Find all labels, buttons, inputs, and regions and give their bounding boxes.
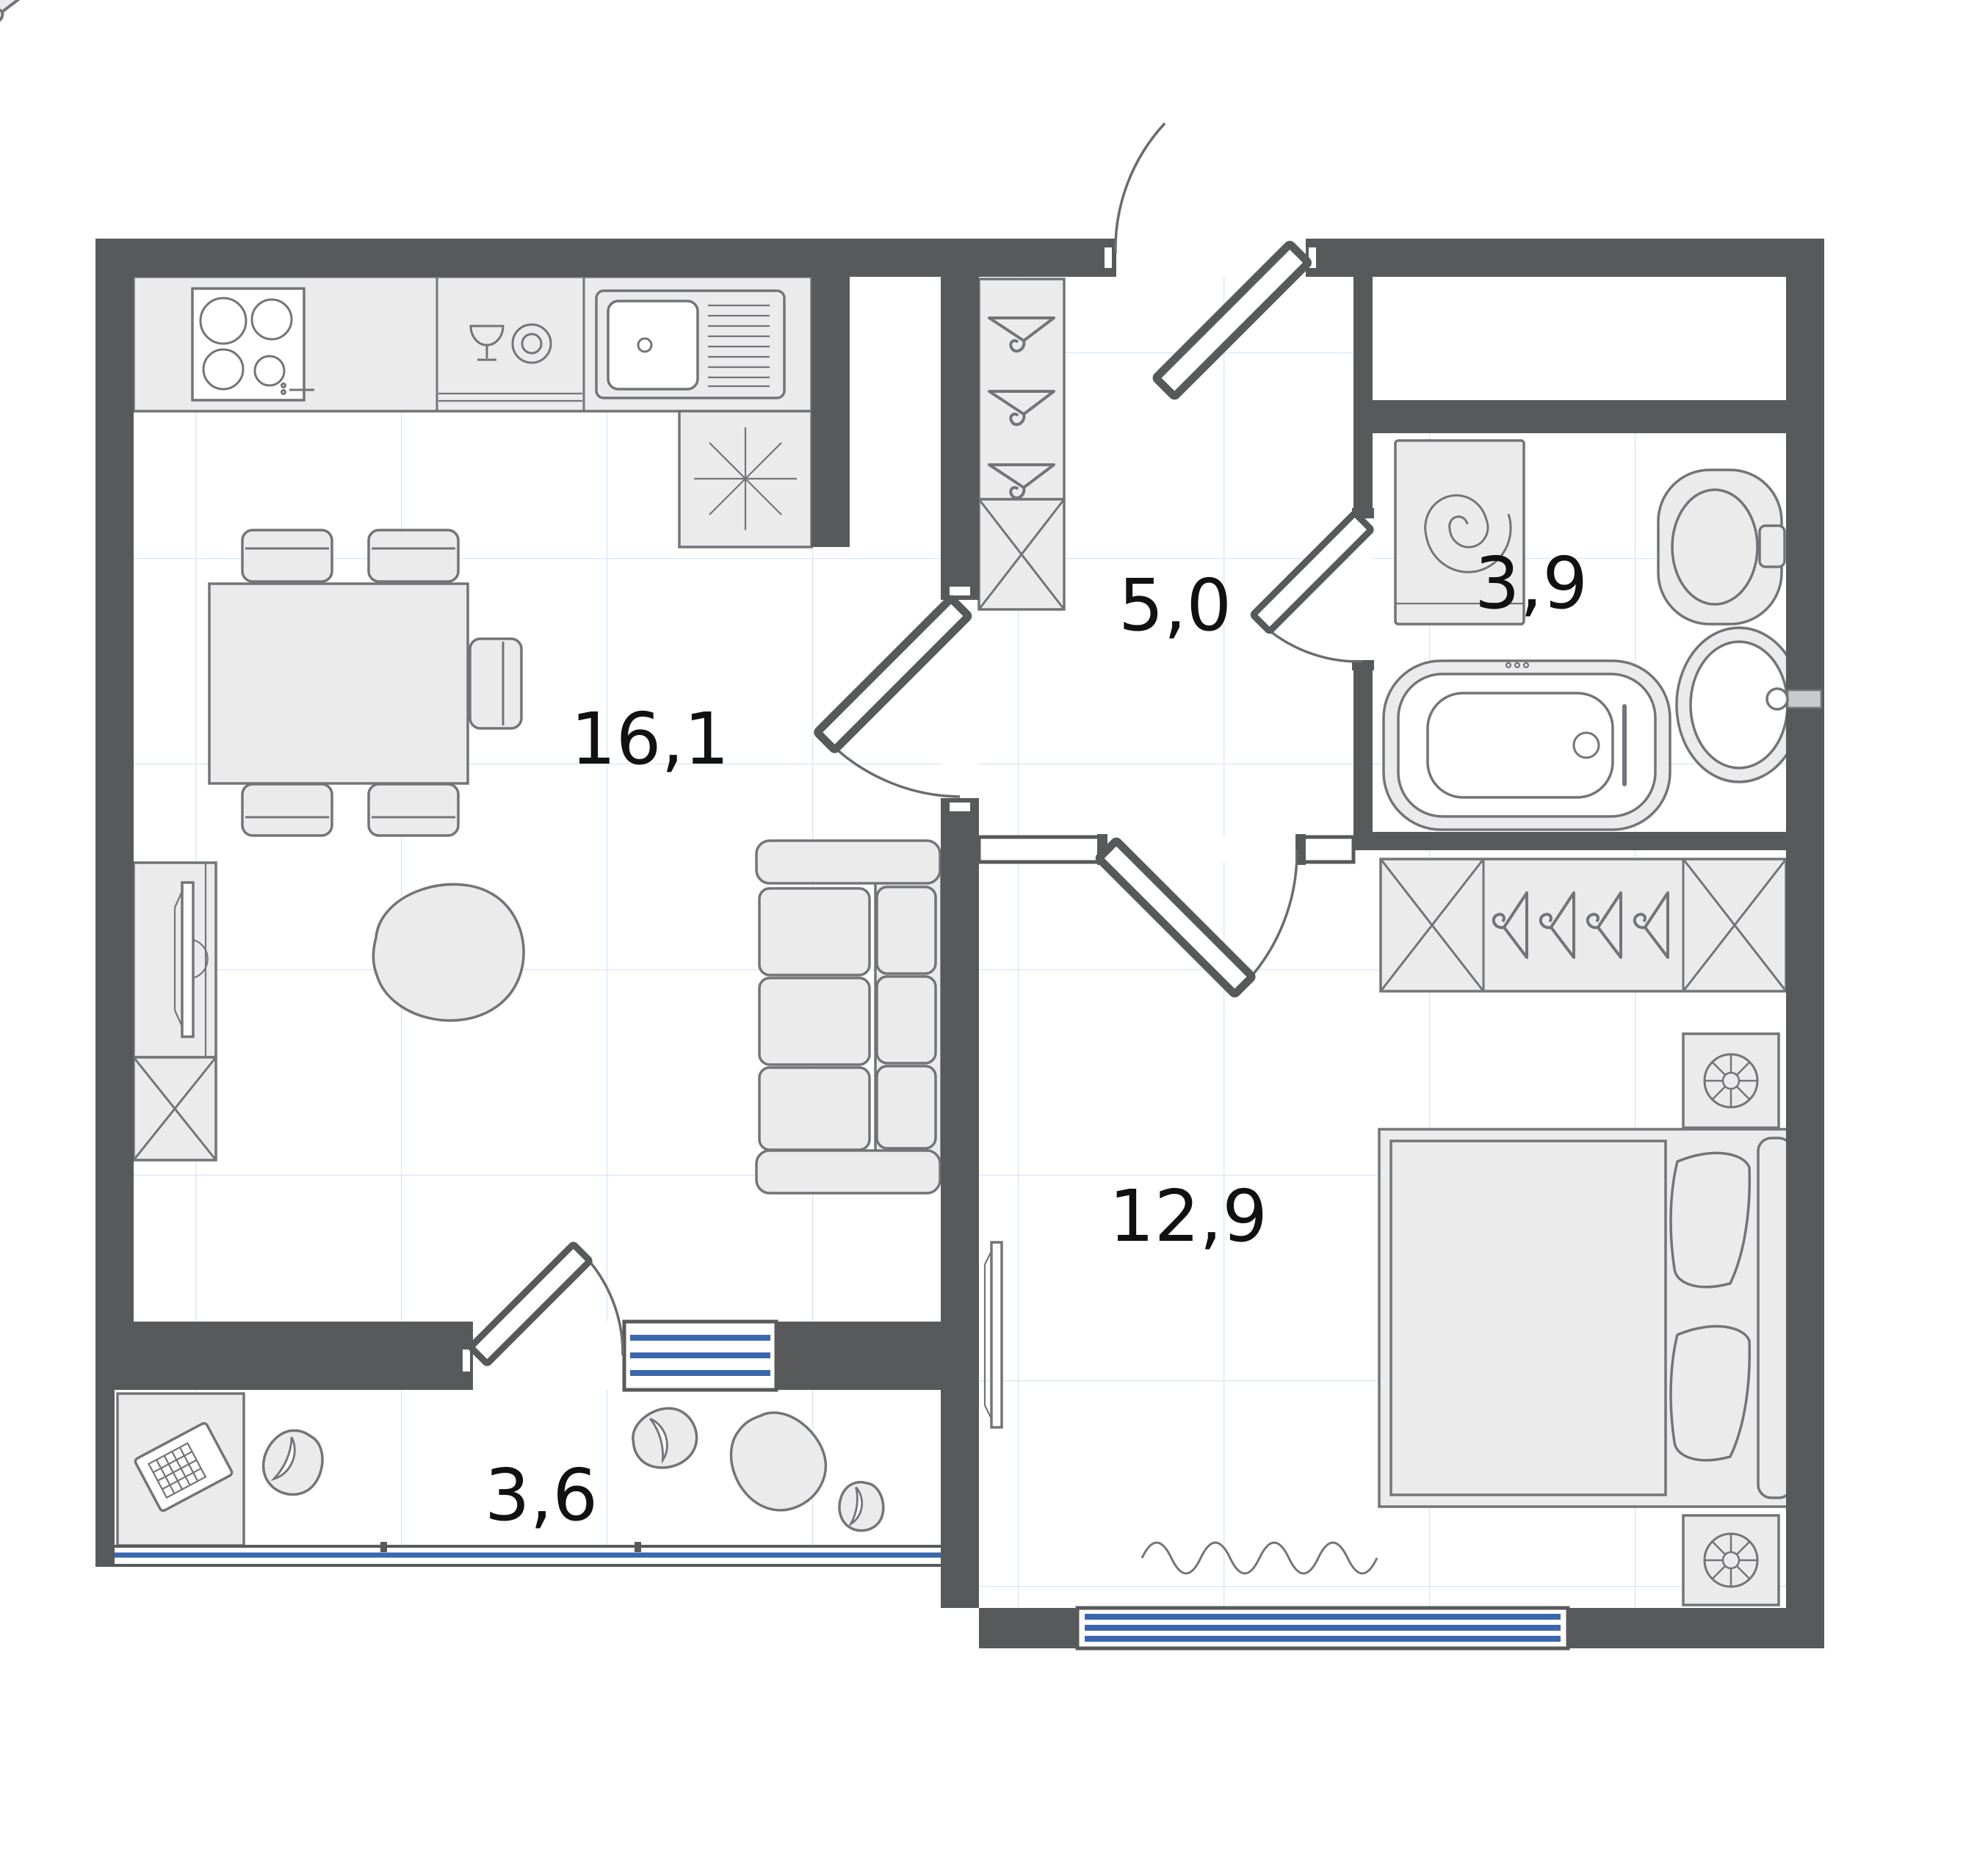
dining-chair — [369, 530, 458, 582]
wall-bedroom-bottom-left — [979, 1608, 1077, 1648]
wall-top-left — [95, 239, 1116, 277]
wall-left — [95, 277, 134, 1390]
dining-table — [209, 584, 468, 783]
pillow — [1671, 1326, 1749, 1460]
floor-plan-page: 16,1 5,0 3,9 12,9 3,6 — [0, 0, 1988, 1873]
double-bed — [1379, 1129, 1792, 1507]
cabinet-x-icon — [134, 1057, 216, 1160]
room-label-living: 16,1 — [571, 698, 729, 780]
wall-right — [1786, 277, 1824, 1648]
sofa — [756, 841, 941, 1193]
bathtub-icon — [1384, 661, 1670, 830]
nightstand-top — [1683, 1034, 1779, 1128]
balcony-block-window — [624, 1322, 776, 1390]
dining-chair — [369, 784, 458, 836]
stove-icon — [192, 289, 314, 400]
wall-bedroom-bottom-right — [1568, 1608, 1786, 1648]
hall-cabinet-x-icon — [979, 499, 1064, 609]
room-label-hallway: 5,0 — [1118, 564, 1232, 647]
dining-chair — [242, 530, 332, 582]
dining-chair — [242, 784, 332, 836]
washbasin-faucet-icon — [1767, 689, 1821, 709]
wardrobe — [1381, 859, 1786, 991]
wall-top-right — [1306, 239, 1824, 277]
wall-central — [941, 798, 979, 1608]
room-label-bathroom: 3,9 — [1475, 542, 1588, 625]
wall-balcony-left — [95, 1390, 115, 1567]
wall-bathroom-bottom — [1353, 832, 1786, 850]
wall-bathroom-partition-bottom — [1353, 664, 1373, 850]
wall-bathroom-niche-band — [1373, 400, 1786, 433]
wall-bathroom-partition-top — [1353, 277, 1373, 514]
asterisk-unit-icon — [679, 411, 812, 547]
nightstand-lamp-icon — [1705, 1054, 1757, 1107]
coat-hanger-icon — [0, 0, 32, 22]
bedroom-window — [1077, 1608, 1568, 1648]
nightstand-lamp-icon — [1705, 1534, 1757, 1587]
tv-unit — [134, 863, 216, 1057]
wall-central-top — [941, 277, 979, 600]
nightstand-bottom — [1683, 1515, 1779, 1605]
kitchen-sink-icon — [596, 291, 784, 398]
wall-balcony-separator-left — [115, 1322, 473, 1390]
toilet-icon — [1658, 470, 1785, 624]
wall-balcony-separator-right — [776, 1322, 941, 1390]
partition-hall-bedroom-right — [1301, 837, 1353, 862]
floor-plan: 16,1 5,0 3,9 12,9 3,6 — [0, 0, 1988, 1873]
room-label-bedroom: 12,9 — [1109, 1175, 1268, 1258]
pillow — [1671, 1153, 1749, 1286]
dining-chair — [470, 639, 521, 728]
room-label-balcony: 3,6 — [485, 1454, 598, 1537]
balcony-glazing — [115, 1542, 941, 1565]
partition-hall-bedroom-left — [979, 837, 1100, 862]
wall-kitchen-stub — [812, 277, 850, 547]
